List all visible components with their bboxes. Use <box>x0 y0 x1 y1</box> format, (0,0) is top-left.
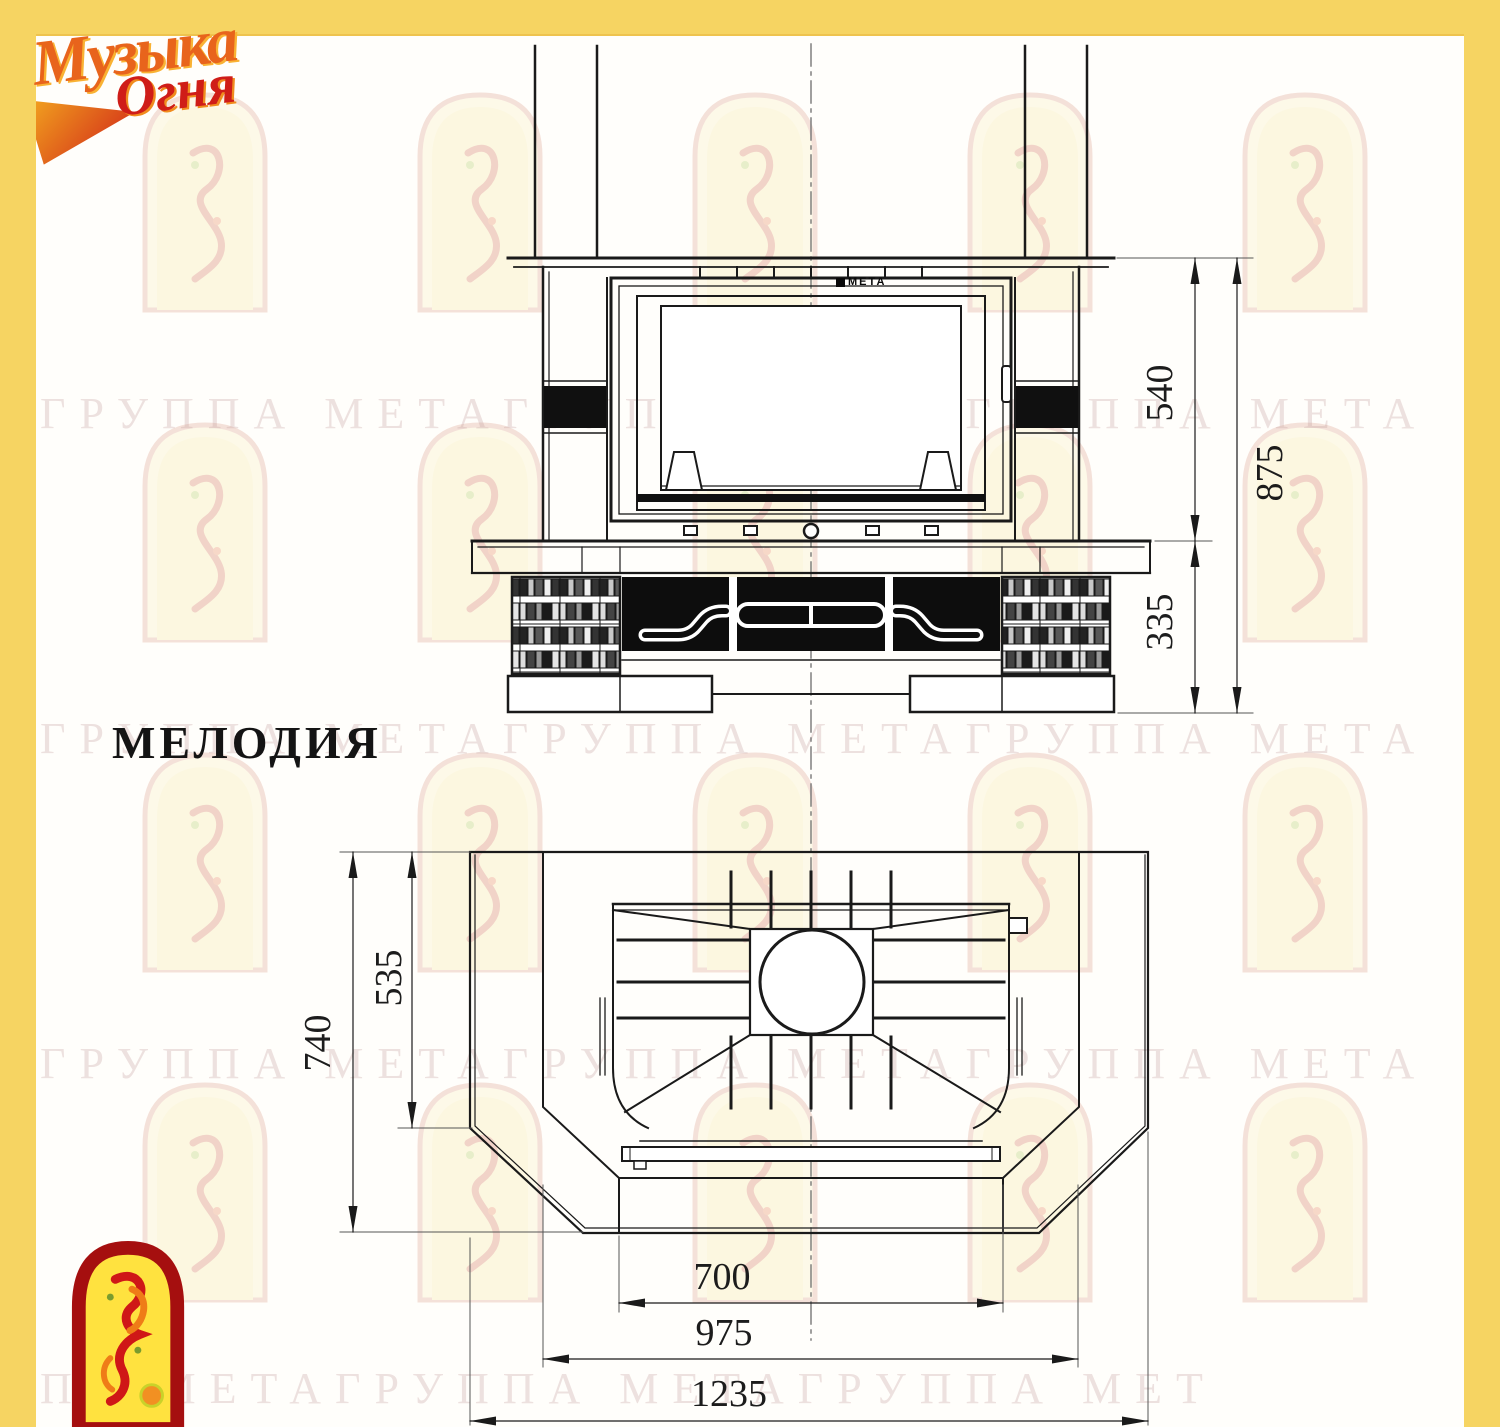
catalog-page: ГРУППА МЕТАГРУППА МЕТАГРУППА МЕТА ГРУППА… <box>0 0 1500 1427</box>
dim-label-upper-depth: 535 <box>367 950 411 1007</box>
firebox-brand-mark-icon <box>836 278 845 287</box>
firebox-brand-logo: МЕТА <box>836 276 886 288</box>
frame-bar-right <box>1464 0 1500 1427</box>
plan-view <box>470 852 1148 1233</box>
dim-label-total-height: 875 <box>1248 445 1292 502</box>
dim-label-total-width: 1235 <box>691 1372 767 1416</box>
dim-label-body-width: 975 <box>696 1311 753 1355</box>
dim-label-firebox-height: 540 <box>1138 365 1182 422</box>
firebox-brand-text: МЕТА <box>848 276 886 288</box>
dim-label-base-height: 335 <box>1138 594 1182 651</box>
firebird-emblem-icon <box>70 1240 190 1427</box>
dim-label-opening-width: 700 <box>694 1255 751 1299</box>
model-title: МЕЛОДИЯ <box>112 716 382 769</box>
technical-drawing <box>0 0 1500 1427</box>
frame-bar-left <box>0 0 36 1427</box>
dim-label-total-depth: 740 <box>296 1015 340 1072</box>
